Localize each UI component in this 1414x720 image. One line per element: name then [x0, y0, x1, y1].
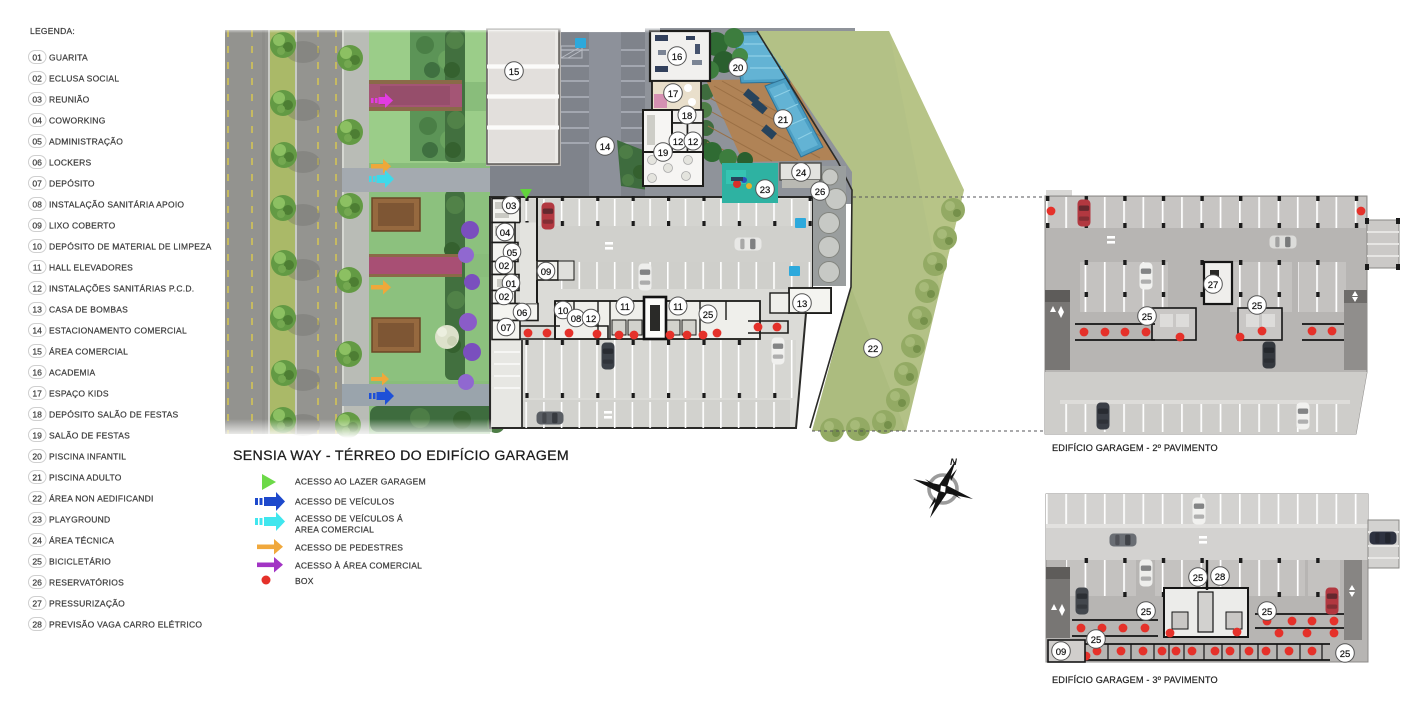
svg-text:11: 11: [673, 302, 683, 313]
svg-text:LOCKERS: LOCKERS: [49, 157, 91, 167]
svg-text:15: 15: [32, 346, 42, 356]
svg-text:16: 16: [672, 52, 683, 63]
svg-text:06: 06: [517, 308, 528, 319]
svg-text:11: 11: [33, 262, 42, 272]
svg-text:20: 20: [32, 451, 42, 461]
svg-text:16: 16: [32, 367, 42, 377]
svg-text:ADMINISTRAÇÃO: ADMINISTRAÇÃO: [49, 136, 123, 146]
svg-text:28: 28: [1215, 572, 1226, 583]
svg-text:22: 22: [868, 344, 879, 355]
svg-text:ACESSO DE VEÍCULOS: ACESSO DE VEÍCULOS: [295, 497, 395, 507]
svg-text:09: 09: [32, 220, 42, 230]
svg-text:15: 15: [509, 67, 520, 78]
svg-text:ÁREA TÉCNICA: ÁREA TÉCNICA: [49, 535, 114, 545]
svg-text:SENSIA WAY - TÉRREO DO EDIFÍCI: SENSIA WAY - TÉRREO DO EDIFÍCIO GARAGEM: [233, 447, 569, 464]
svg-text:02: 02: [499, 292, 510, 303]
svg-text:CASA DE BOMBAS: CASA DE BOMBAS: [49, 304, 128, 314]
svg-text:21: 21: [778, 115, 789, 126]
svg-text:DEPÓSITO: DEPÓSITO: [49, 178, 95, 188]
svg-text:ACESSO DE PEDESTRES: ACESSO DE PEDESTRES: [295, 543, 403, 553]
svg-text:25: 25: [703, 310, 714, 321]
svg-text:REUNIÃO: REUNIÃO: [49, 94, 90, 104]
svg-text:23: 23: [32, 514, 42, 524]
svg-text:09: 09: [541, 267, 552, 278]
svg-text:26: 26: [815, 187, 826, 198]
svg-text:23: 23: [760, 185, 771, 196]
svg-text:EDIFÍCIO GARAGEM - 3º PAVIMENT: EDIFÍCIO GARAGEM - 3º PAVIMENTO: [1052, 675, 1218, 685]
svg-text:22: 22: [32, 493, 42, 503]
svg-text:20: 20: [733, 63, 744, 74]
svg-text:EDIFÍCIO GARAGEM - 2º PAVIMENT: EDIFÍCIO GARAGEM - 2º PAVIMENTO: [1052, 443, 1218, 453]
svg-text:PRESSURIZAÇÃO: PRESSURIZAÇÃO: [49, 598, 125, 608]
svg-text:17: 17: [668, 89, 679, 100]
svg-text:10: 10: [32, 241, 42, 251]
svg-text:25: 25: [1252, 301, 1263, 312]
svg-text:19: 19: [658, 148, 669, 159]
svg-text:13: 13: [797, 299, 808, 310]
svg-text:25: 25: [1340, 649, 1351, 660]
svg-text:INSTALAÇÃO SANITÁRIA APOIO: INSTALAÇÃO SANITÁRIA APOIO: [49, 199, 184, 209]
svg-text:07: 07: [32, 178, 42, 188]
svg-text:24: 24: [32, 535, 42, 545]
svg-text:ÁREA NON AEDIFICANDI: ÁREA NON AEDIFICANDI: [49, 493, 154, 503]
svg-text:LIXO COBERTO: LIXO COBERTO: [49, 220, 116, 230]
svg-text:26: 26: [32, 577, 42, 587]
svg-text:SALÃO DE FESTAS: SALÃO DE FESTAS: [49, 430, 130, 440]
svg-text:08: 08: [571, 314, 582, 325]
svg-text:ACESSO AO LAZER GARAGEM: ACESSO AO LAZER GARAGEM: [295, 477, 426, 487]
svg-text:09: 09: [1056, 647, 1067, 658]
svg-text:GUARITA: GUARITA: [49, 52, 88, 62]
svg-text:AREA COMERCIAL: AREA COMERCIAL: [295, 525, 374, 535]
svg-text:PLAYGROUND: PLAYGROUND: [49, 514, 110, 524]
svg-text:19: 19: [32, 430, 42, 440]
svg-text:N: N: [950, 457, 958, 468]
svg-text:PISCINA INFANTIL: PISCINA INFANTIL: [49, 451, 126, 461]
svg-text:05: 05: [32, 136, 42, 146]
svg-text:LEGENDA:: LEGENDA:: [30, 26, 75, 36]
svg-text:18: 18: [682, 111, 693, 122]
svg-text:27: 27: [32, 598, 42, 608]
svg-text:25: 25: [1262, 607, 1273, 618]
svg-text:12: 12: [32, 283, 42, 293]
svg-text:INSTALAÇÕES SANITÁRIAS P.C.D.: INSTALAÇÕES SANITÁRIAS P.C.D.: [49, 283, 194, 293]
svg-text:10: 10: [558, 306, 569, 317]
svg-text:ACESSO DE VEÍCULOS Á: ACESSO DE VEÍCULOS Á: [295, 514, 403, 524]
svg-text:01: 01: [32, 52, 42, 62]
svg-text:PISCINA ADULTO: PISCINA ADULTO: [49, 472, 122, 482]
svg-text:06: 06: [32, 157, 42, 167]
svg-text:BICICLETÁRIO: BICICLETÁRIO: [49, 556, 111, 566]
svg-text:12: 12: [688, 137, 699, 148]
svg-text:03: 03: [32, 94, 42, 104]
svg-text:ESTACIONAMENTO COMERCIAL: ESTACIONAMENTO COMERCIAL: [49, 325, 187, 335]
svg-text:12: 12: [673, 137, 684, 148]
svg-text:14: 14: [32, 325, 42, 335]
svg-text:04: 04: [500, 228, 511, 239]
svg-text:ACADEMIA: ACADEMIA: [49, 367, 95, 377]
svg-text:03: 03: [506, 201, 517, 212]
svg-text:COWORKING: COWORKING: [49, 115, 106, 125]
svg-text:ACESSO À ÁREA COMERCIAL: ACESSO À ÁREA COMERCIAL: [295, 561, 422, 571]
svg-text:02: 02: [499, 261, 510, 272]
svg-text:PREVISÃO VAGA CARRO ELÉTRICO: PREVISÃO VAGA CARRO ELÉTRICO: [49, 619, 202, 629]
svg-text:21: 21: [32, 472, 42, 482]
svg-text:18: 18: [32, 409, 42, 419]
svg-text:RESERVATÓRIOS: RESERVATÓRIOS: [49, 577, 124, 587]
svg-text:25: 25: [1193, 573, 1204, 584]
svg-text:14: 14: [600, 142, 611, 153]
svg-text:02: 02: [32, 73, 42, 83]
svg-text:28: 28: [32, 619, 42, 629]
svg-text:08: 08: [32, 199, 42, 209]
svg-text:DEPÓSITO DE MATERIAL DE LIMPEZ: DEPÓSITO DE MATERIAL DE LIMPEZA: [49, 241, 212, 251]
svg-text:12: 12: [586, 314, 597, 325]
svg-text:HALL ELEVADORES: HALL ELEVADORES: [49, 262, 133, 272]
svg-text:24: 24: [796, 168, 807, 179]
svg-text:13: 13: [32, 304, 42, 314]
svg-text:DEPÓSITO SALÃO DE FESTAS: DEPÓSITO SALÃO DE FESTAS: [49, 409, 179, 419]
svg-text:04: 04: [32, 115, 42, 125]
svg-text:11: 11: [620, 302, 630, 313]
svg-text:BOX: BOX: [295, 576, 314, 586]
svg-text:27: 27: [1208, 280, 1219, 291]
svg-text:25: 25: [1091, 635, 1102, 646]
svg-text:17: 17: [32, 388, 42, 398]
svg-text:25: 25: [32, 556, 42, 566]
svg-text:25: 25: [1141, 607, 1152, 618]
svg-text:ÁREA COMERCIAL: ÁREA COMERCIAL: [49, 346, 128, 356]
svg-text:07: 07: [501, 323, 512, 334]
svg-text:ESPAÇO KIDS: ESPAÇO KIDS: [49, 388, 109, 398]
svg-text:ECLUSA SOCIAL: ECLUSA SOCIAL: [49, 73, 119, 83]
svg-text:25: 25: [1142, 312, 1153, 323]
